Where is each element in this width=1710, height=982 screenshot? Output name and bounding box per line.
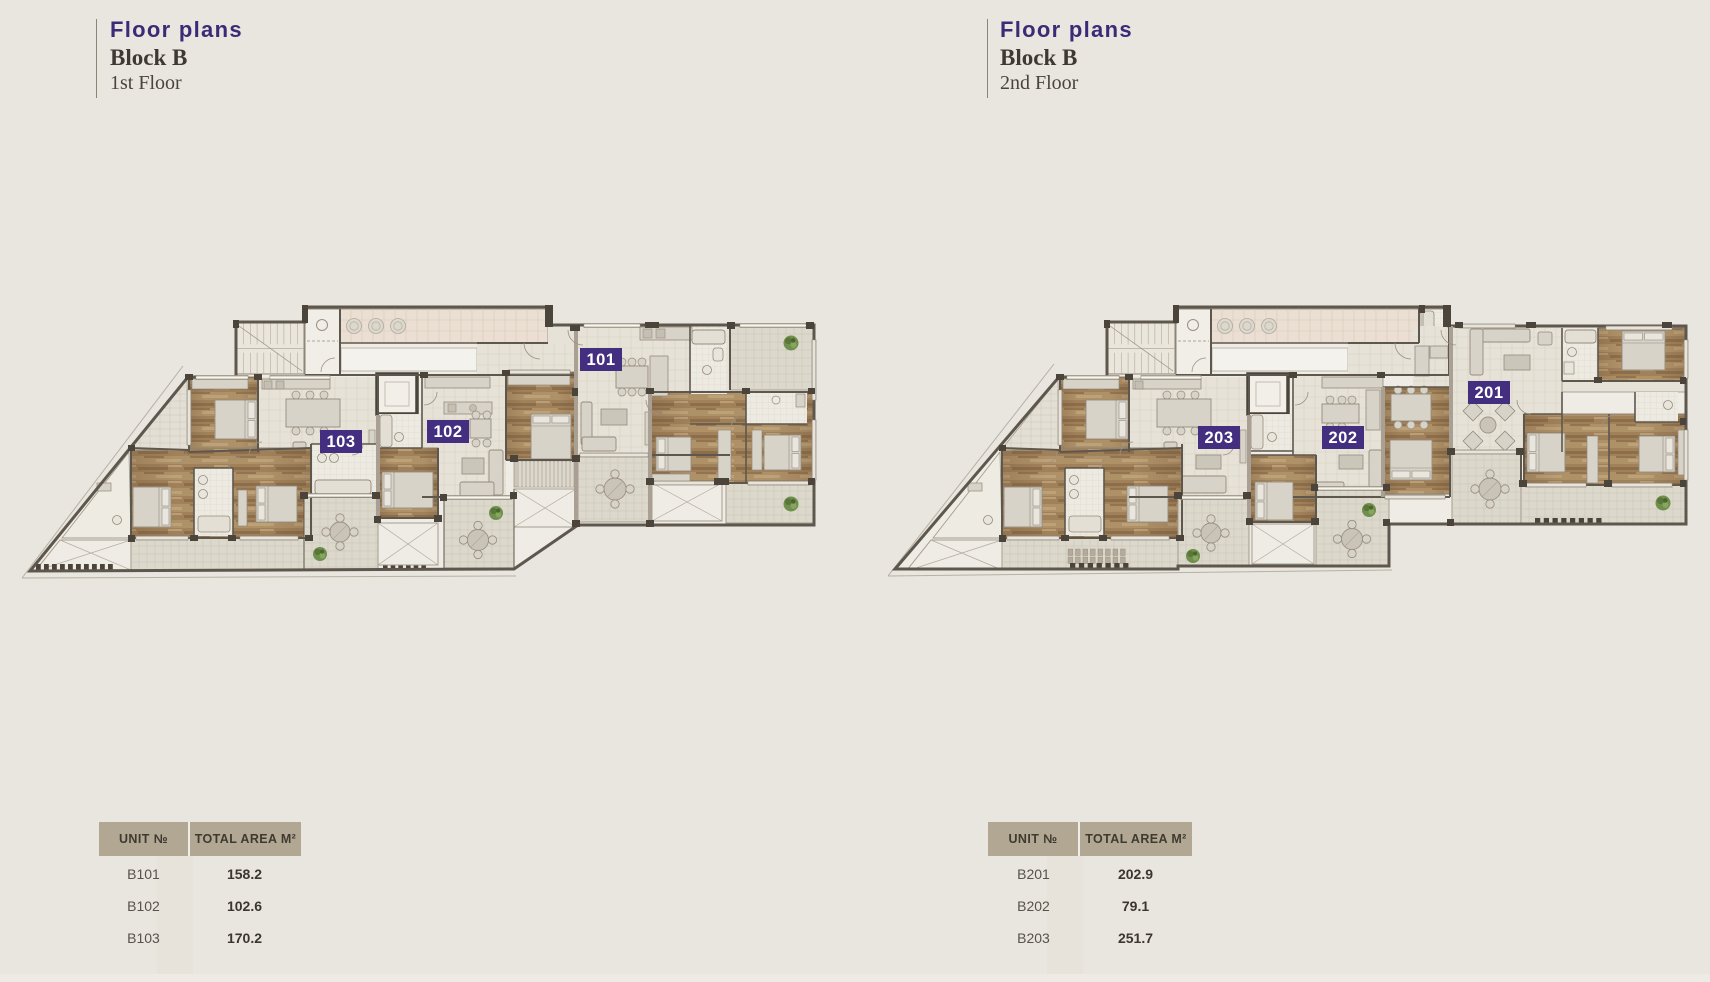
svg-text:201: 201	[1474, 384, 1503, 402]
svg-text:202: 202	[1328, 429, 1357, 447]
svg-text:103: 103	[326, 433, 355, 451]
svg-text:102: 102	[433, 423, 462, 441]
svg-text:203: 203	[1204, 429, 1233, 447]
svg-text:101: 101	[586, 351, 615, 369]
